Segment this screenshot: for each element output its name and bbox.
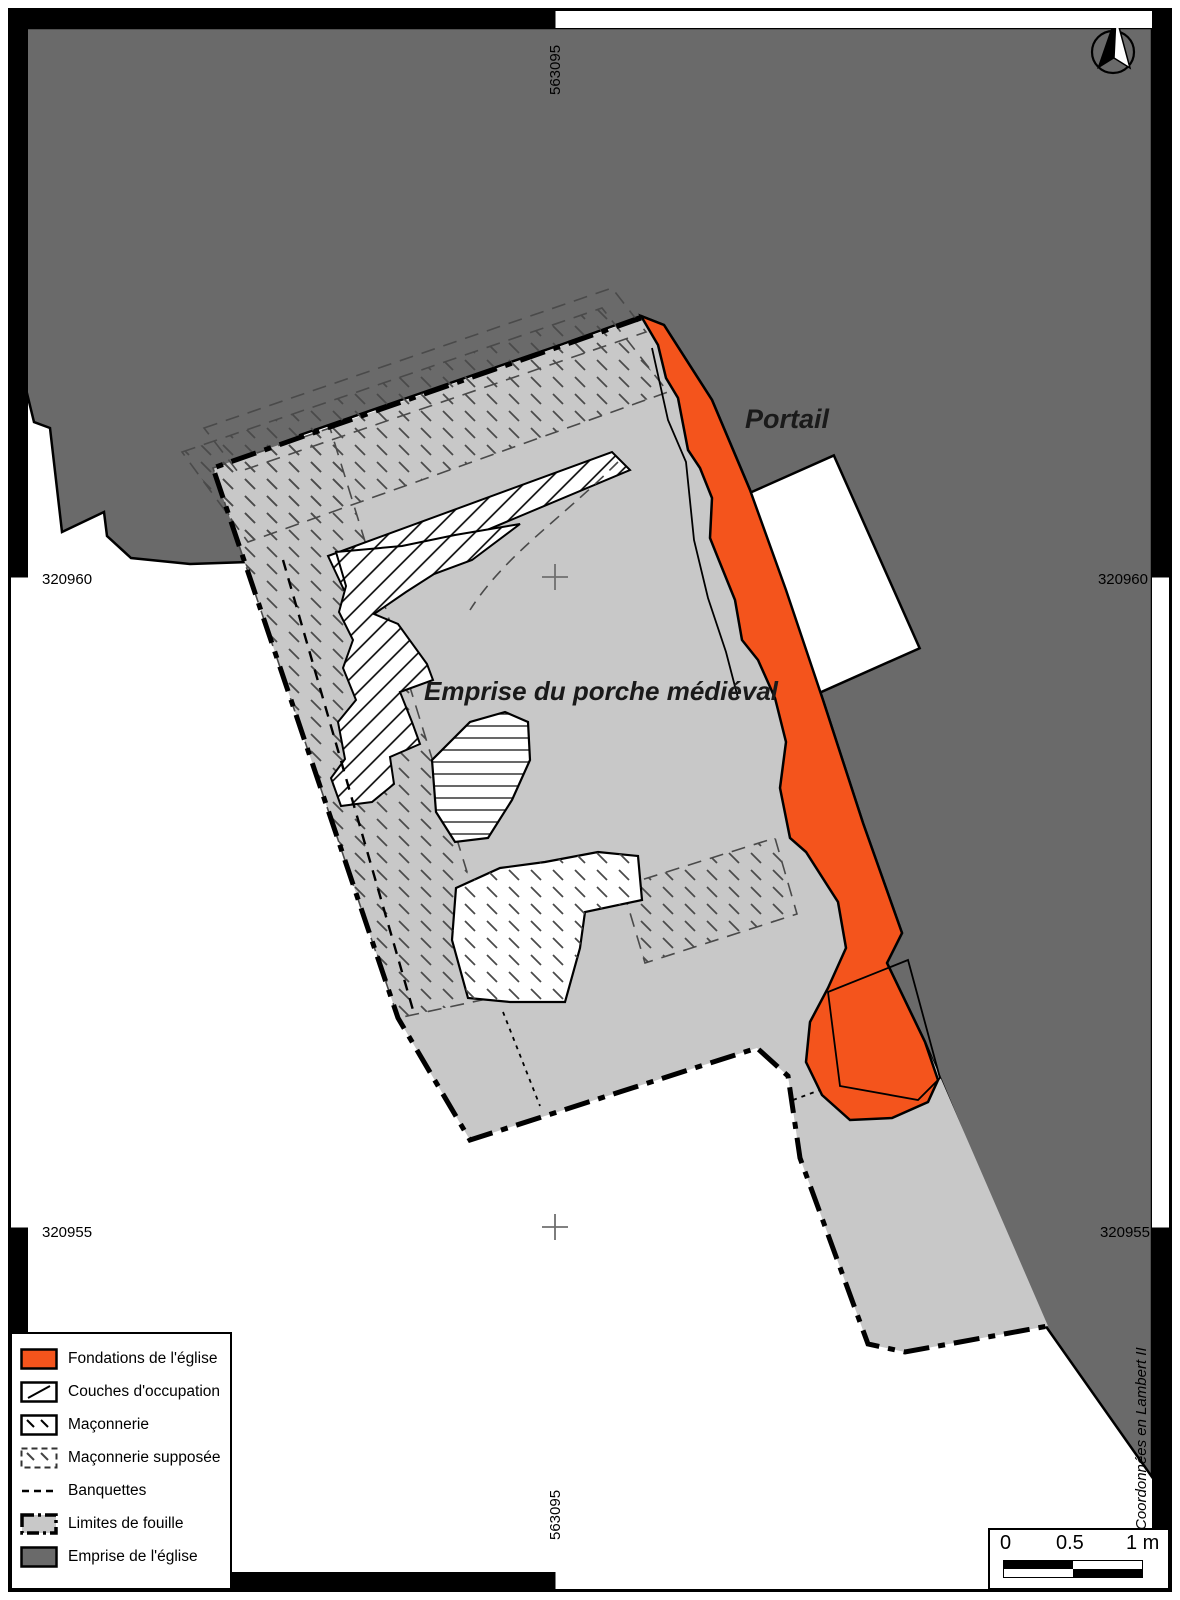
legend-item-maconnerie-supposee: Maçonnerie supposée <box>20 1441 230 1474</box>
neatline-top <box>11 11 1169 28</box>
scalebar-segment <box>1073 1561 1142 1569</box>
legend-box: Fondations de l'église Couches d'occupat… <box>10 1332 232 1590</box>
portail-label: Portail <box>745 404 830 434</box>
legend-swatch-dashed-line <box>20 1480 60 1502</box>
legend-item-maconnerie: Maçonnerie <box>20 1408 230 1441</box>
legend-swatch-masonry-dashed <box>20 1447 60 1469</box>
scalebar-box: 0 0.5 1 m <box>988 1528 1170 1590</box>
grid-cross-lower <box>542 1214 568 1240</box>
scalebar-tick-1: 1 m <box>1126 1532 1159 1555</box>
northing-label-lower-right: 320955 <box>1100 1224 1150 1241</box>
northing-label-upper-right: 320960 <box>1098 571 1148 588</box>
northing-label-upper-left: 320960 <box>42 571 92 588</box>
scalebar-graphic <box>1003 1560 1143 1578</box>
legend-swatch-gray-dashdot <box>20 1513 60 1535</box>
scalebar-segment <box>1004 1569 1073 1577</box>
easting-label-bottom: 563095 <box>547 1490 564 1540</box>
credit-label: Coordonnées en Lambert II <box>1133 1347 1150 1530</box>
legend-label: Fondations de l'église <box>68 1350 217 1368</box>
legend-item-couches: Couches d'occupation <box>20 1375 230 1408</box>
scalebar-tick-0: 0 <box>1000 1532 1011 1555</box>
legend-label: Maçonnerie supposée <box>68 1449 221 1467</box>
neatline-right <box>1152 11 1169 1589</box>
scalebar-tick-05: 0.5 <box>1056 1532 1084 1555</box>
legend-swatch-orange-fill <box>20 1348 60 1370</box>
legend-label: Limites de fouille <box>68 1515 183 1533</box>
legend-item-emprise: Emprise de l'église <box>20 1540 230 1573</box>
legend-label: Emprise de l'église <box>68 1548 198 1566</box>
legend-label: Banquettes <box>68 1482 146 1500</box>
legend-item-fondations: Fondations de l'église <box>20 1342 230 1375</box>
northing-label-lower-left: 320955 <box>42 1224 92 1241</box>
legend-item-limites: Limites de fouille <box>20 1507 230 1540</box>
legend-swatch-diagonal-hatch <box>20 1381 60 1403</box>
legend-swatch-darkgray-fill <box>20 1546 60 1568</box>
legend-swatch-masonry-hatch <box>20 1414 60 1436</box>
scalebar-segment <box>1004 1561 1073 1569</box>
easting-label-top: 563095 <box>547 45 564 95</box>
legend-label: Maçonnerie <box>68 1416 149 1434</box>
legend-label: Couches d'occupation <box>68 1383 220 1401</box>
legend-item-banquettes: Banquettes <box>20 1474 230 1507</box>
scalebar-segment <box>1073 1569 1142 1577</box>
emprise-porche-label: Emprise du porche médiéval <box>424 676 779 706</box>
